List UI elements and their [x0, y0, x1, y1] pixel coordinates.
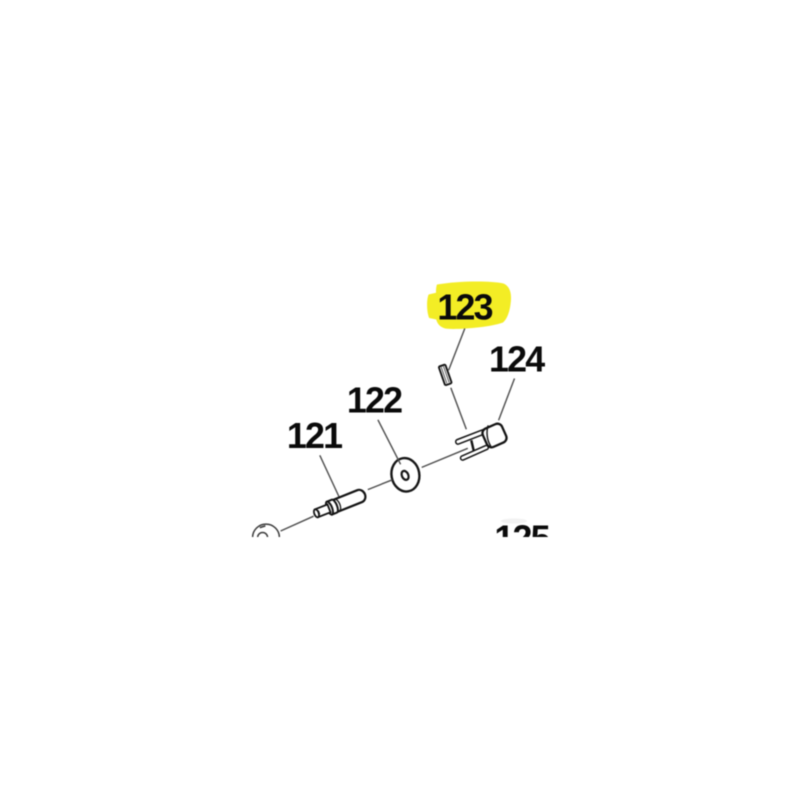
svg-text:124: 124	[489, 339, 545, 379]
svg-text:123: 123	[437, 288, 492, 328]
svg-text:121: 121	[287, 416, 342, 456]
svg-text:122: 122	[347, 380, 402, 420]
